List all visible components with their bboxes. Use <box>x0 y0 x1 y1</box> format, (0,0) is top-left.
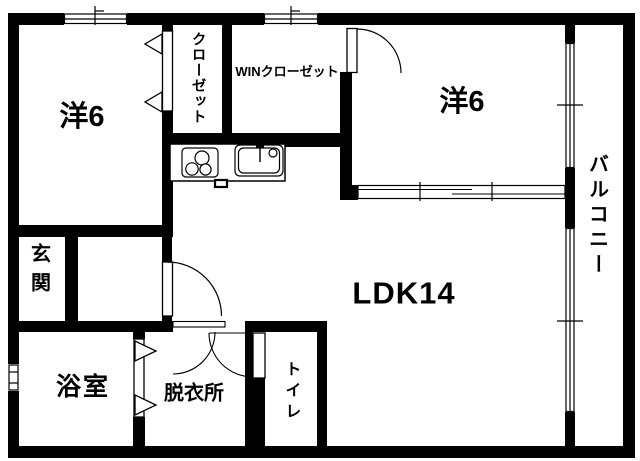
wall-unit-right-c <box>565 412 575 446</box>
window-ldk <box>557 229 583 412</box>
room-label-closet: クローゼット <box>189 32 204 125</box>
kitchen-sink <box>235 143 283 177</box>
wall-toilet-left-strip <box>245 332 253 446</box>
window-bathroom <box>9 365 18 390</box>
room-label-walk-in-closet: WINクローゼット <box>235 65 338 79</box>
wall-toilet-left-lower <box>253 378 265 446</box>
room-right-sliding-partition <box>358 182 565 201</box>
floorplan: 洋6 洋6 クローゼット WINクローゼット LDK14 バルコニー 玄関 浴室… <box>0 0 640 461</box>
closet-folding-doors <box>145 31 173 112</box>
wall-bottom <box>8 446 635 458</box>
ldk-door <box>163 262 222 316</box>
wall-room-right-corner <box>340 185 358 200</box>
wall-hall-a <box>162 237 172 262</box>
wall-unit-right-b <box>565 168 575 228</box>
wall-closet-divider <box>222 25 232 133</box>
window-room-right <box>557 44 583 168</box>
wall-bath-divider-bottom <box>133 417 145 446</box>
wall-toilet-right <box>317 332 327 446</box>
bathroom-folding-doors <box>134 339 156 417</box>
wall-entrance-right <box>65 237 78 321</box>
toilet-door <box>253 333 265 378</box>
window-top-middle <box>265 6 318 25</box>
room-label-bathroom: 浴室 <box>56 374 110 400</box>
room-label-ldk: LDK14 <box>352 278 455 311</box>
room-label-toilet: トイレ <box>282 361 299 424</box>
wall-room-left-bottom <box>8 225 173 237</box>
room-label-entrance: 玄関 <box>28 243 49 301</box>
room-label-western-right: 洋6 <box>439 87 484 117</box>
wall-balcony-outer <box>623 13 635 458</box>
room-label-western-left: 洋6 <box>59 102 104 132</box>
window-top-left <box>65 6 127 25</box>
kitchen-counter <box>170 143 285 188</box>
wall-lower-band <box>8 321 327 332</box>
wall-bath-divider-top <box>133 332 145 339</box>
wic-door <box>347 29 401 74</box>
room-label-balcony: バルコニー <box>586 154 607 279</box>
room-label-dressing-room: 脱衣所 <box>164 384 224 405</box>
wall-room-right-left <box>340 72 352 200</box>
wall-unit-right-a <box>565 13 575 43</box>
